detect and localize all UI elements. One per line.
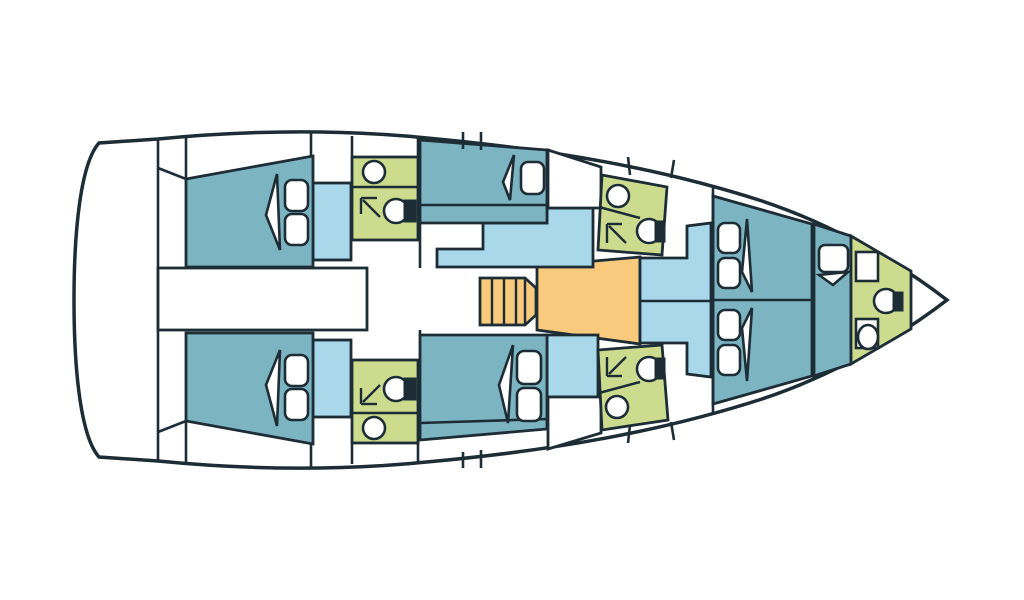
pillow bbox=[819, 245, 848, 272]
toilet-tank bbox=[404, 378, 416, 400]
toilet-tank bbox=[655, 221, 665, 242]
locker-aft-starboard bbox=[313, 340, 351, 417]
salon-settee-starboard bbox=[547, 335, 598, 397]
walkway-corridor bbox=[158, 268, 367, 330]
head-aft-starboard bbox=[352, 360, 418, 443]
pillow bbox=[285, 355, 308, 386]
sink-icon bbox=[607, 185, 629, 207]
forward-cabin bbox=[713, 186, 812, 414]
pillow bbox=[718, 345, 740, 375]
sink-icon bbox=[858, 325, 878, 349]
sink-icon bbox=[363, 161, 385, 183]
companionway-steps bbox=[480, 278, 536, 325]
sink-icon bbox=[363, 417, 385, 439]
pillow bbox=[517, 351, 541, 384]
toilet-tank bbox=[655, 358, 665, 379]
sink-icon bbox=[606, 396, 628, 418]
head-forward-starboard bbox=[598, 345, 668, 430]
pillow bbox=[718, 258, 740, 288]
deck-plan-svg bbox=[0, 0, 1024, 600]
toilet-tank bbox=[893, 292, 903, 311]
galley-area bbox=[537, 257, 640, 344]
pillow bbox=[718, 310, 740, 340]
toilet-tank bbox=[404, 200, 416, 222]
pillow bbox=[285, 214, 308, 245]
pillow bbox=[718, 223, 740, 253]
head-forward-port bbox=[598, 175, 667, 255]
head-aft-port bbox=[352, 157, 418, 240]
pillow bbox=[285, 180, 308, 211]
pillow bbox=[285, 389, 308, 420]
counter bbox=[856, 252, 878, 281]
bow-berth bbox=[814, 224, 851, 376]
yacht-deck-plan bbox=[0, 0, 1024, 600]
locker-aft-port bbox=[313, 183, 351, 260]
pillow bbox=[521, 162, 544, 194]
bow-head bbox=[851, 236, 911, 364]
pillow bbox=[517, 388, 541, 421]
